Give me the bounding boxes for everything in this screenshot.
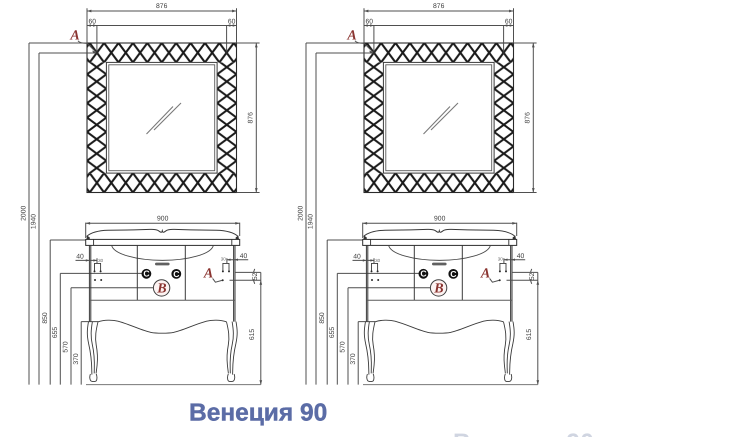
svg-text:30: 30 [375,258,381,263]
svg-text:570: 570 [63,341,70,353]
svg-text:40: 40 [76,254,84,261]
svg-text:30: 30 [98,258,104,263]
svg-text:30: 30 [221,257,227,262]
svg-text:C: C [173,269,179,279]
svg-text:900: 900 [157,215,169,222]
svg-text:615: 615 [526,329,533,341]
svg-text:C: C [143,269,149,279]
svg-text:850: 850 [319,312,326,324]
svg-text:Венеция 90: Венеция 90 [453,430,594,437]
svg-text:1940: 1940 [308,214,315,229]
svg-text:Венеция 90: Венеция 90 [189,400,327,427]
svg-text:876: 876 [156,3,168,10]
svg-text:655: 655 [52,327,59,339]
svg-text:60: 60 [366,19,374,26]
svg-text:615: 615 [249,329,256,341]
svg-text:876: 876 [433,3,445,10]
svg-text:850: 850 [42,312,49,324]
svg-text:C: C [420,269,426,279]
svg-text:370: 370 [350,353,357,365]
svg-text:A: A [480,266,490,281]
svg-text:A: A [203,266,213,281]
svg-text:30: 30 [498,257,504,262]
svg-text:40: 40 [353,254,361,261]
svg-text:570: 570 [340,341,347,353]
svg-text:60: 60 [505,19,513,26]
svg-text:B: B [433,282,443,297]
svg-text:2000: 2000 [298,206,305,221]
svg-text:370: 370 [73,353,80,365]
svg-text:40: 40 [240,253,248,260]
svg-text:876: 876 [248,112,255,124]
svg-text:1940: 1940 [31,214,38,229]
svg-text:B: B [156,282,166,297]
svg-text:60: 60 [228,19,236,26]
svg-text:40: 40 [517,253,525,260]
svg-text:2000: 2000 [21,206,28,221]
svg-text:876: 876 [525,112,532,124]
svg-text:900: 900 [434,215,446,222]
svg-text:655: 655 [329,327,336,339]
svg-text:52: 52 [252,272,259,280]
svg-text:60: 60 [89,19,97,26]
svg-text:52: 52 [529,272,536,280]
svg-text:C: C [450,269,456,279]
